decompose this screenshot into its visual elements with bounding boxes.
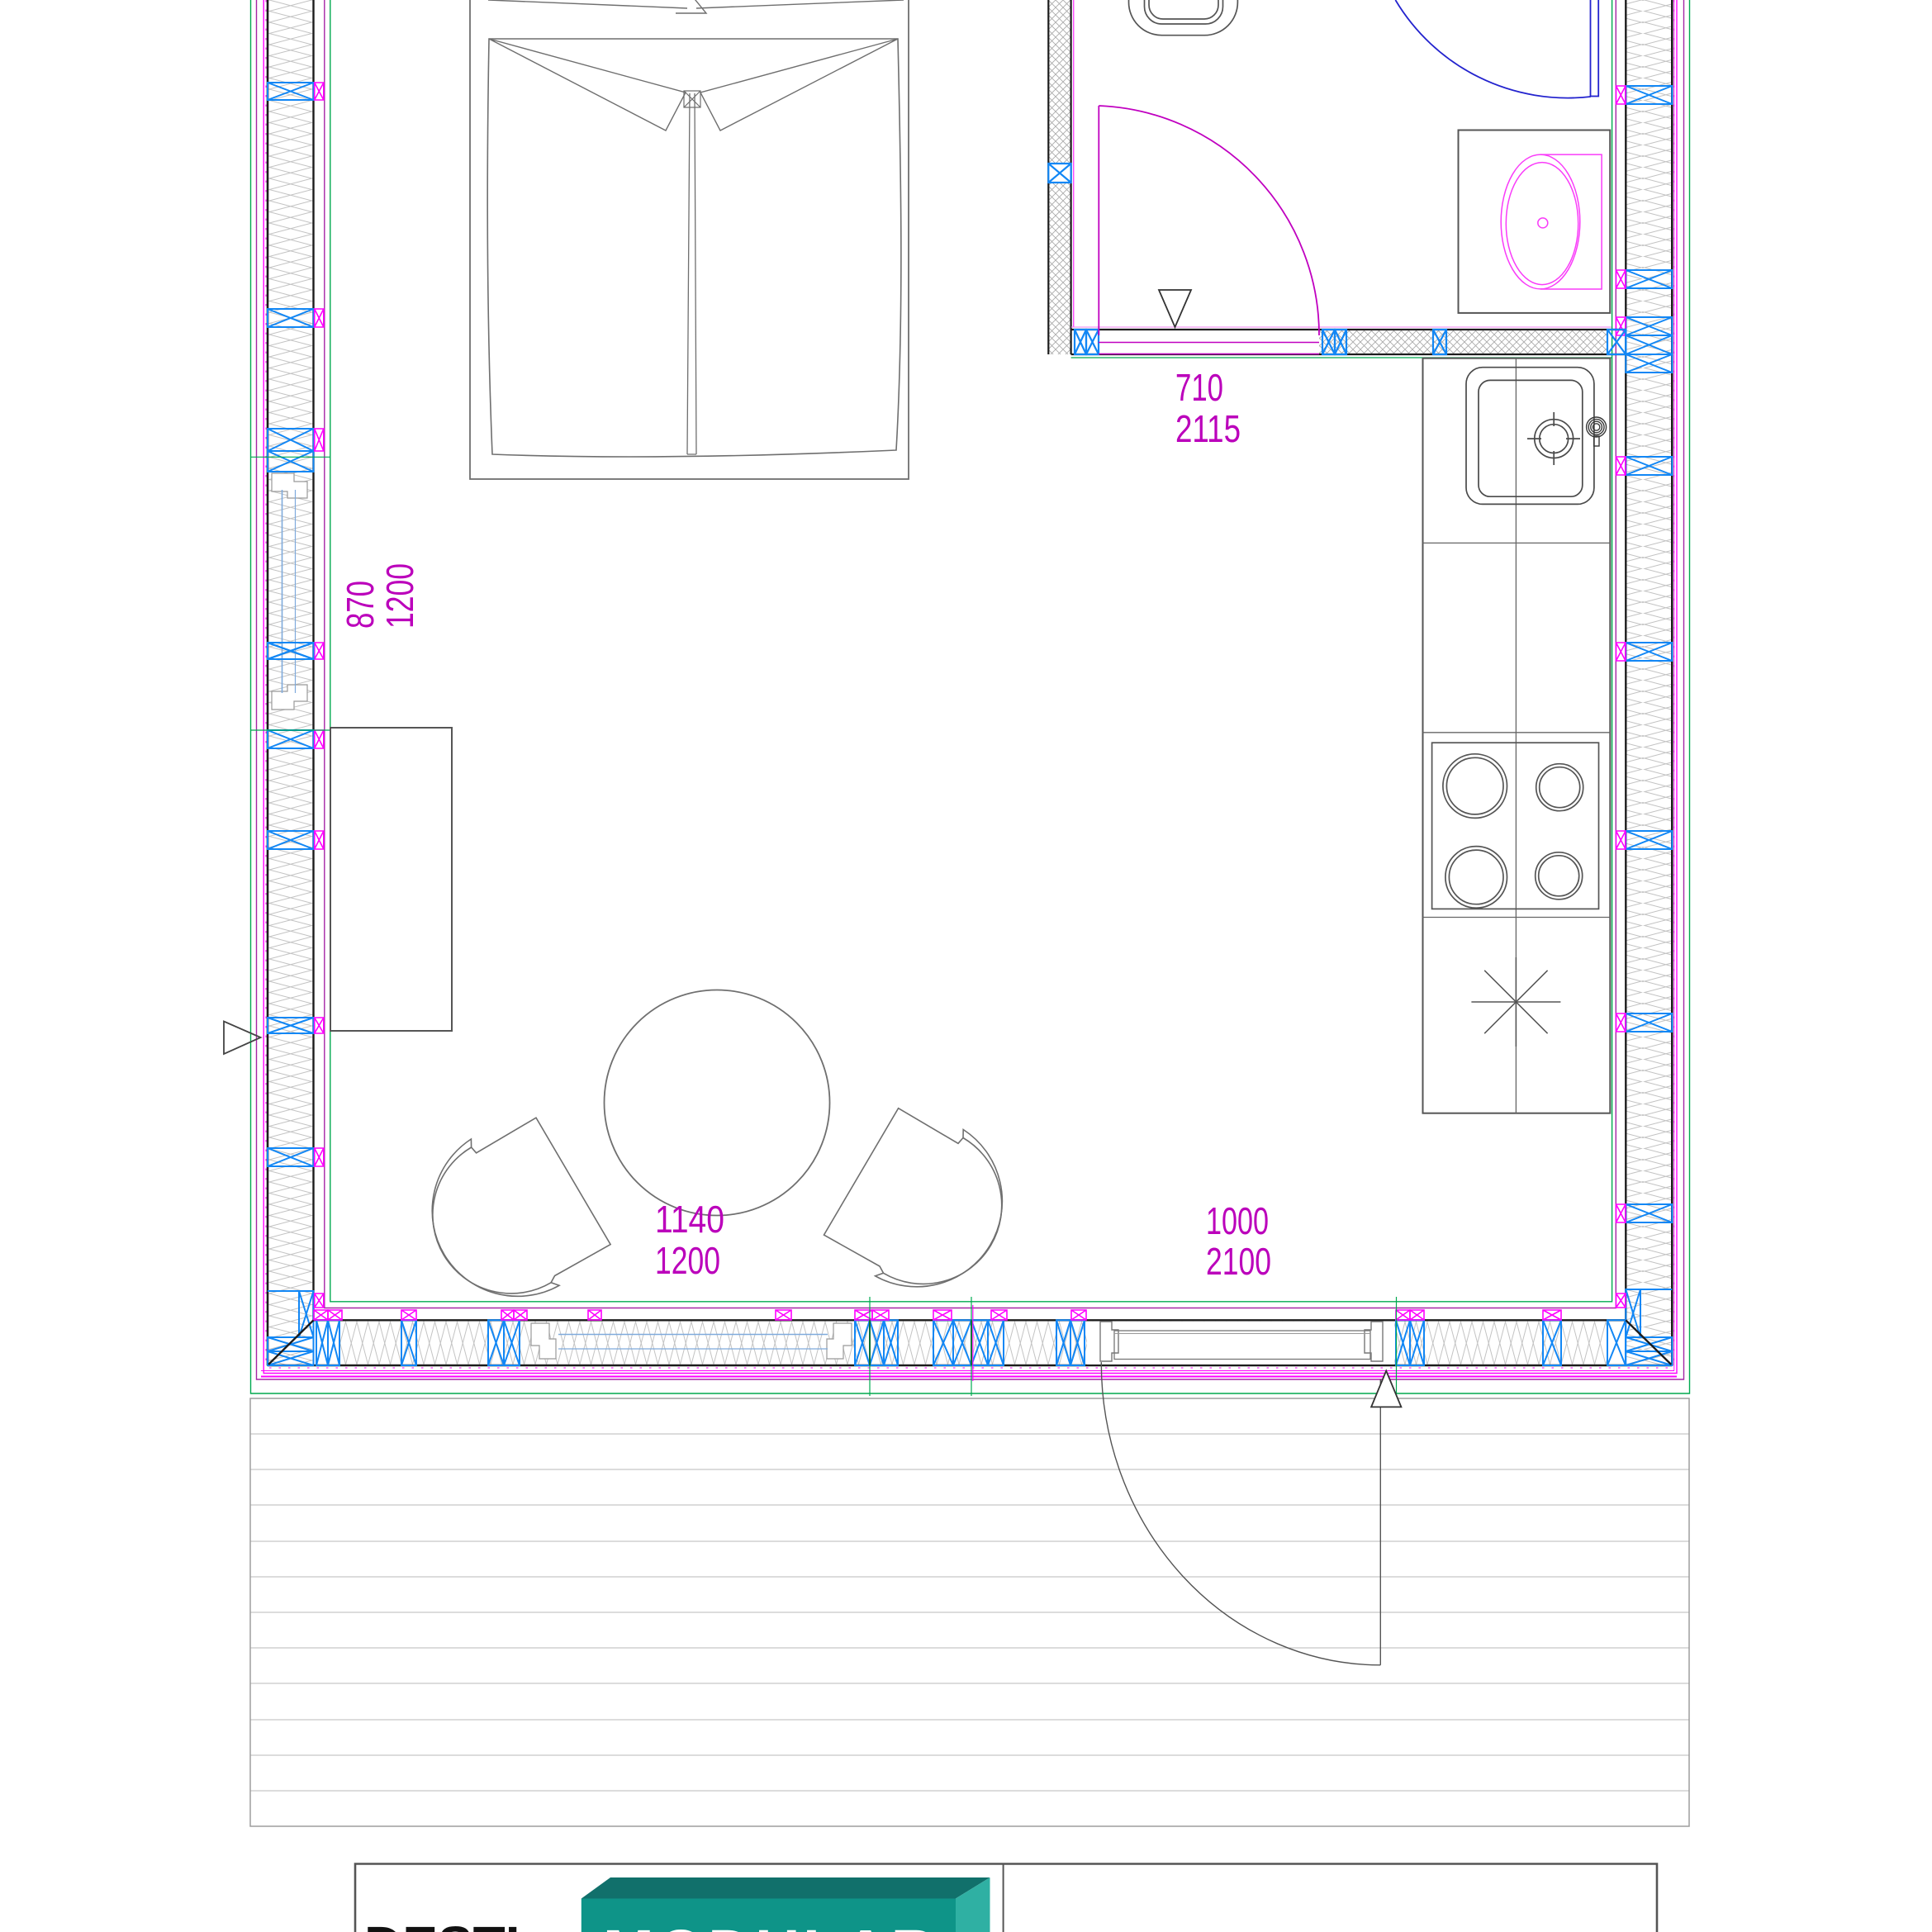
svg-text:710: 710	[1175, 366, 1223, 409]
svg-text:2100: 2100	[1206, 1240, 1271, 1283]
svg-text:DESTI: DESTI	[364, 1915, 520, 1932]
svg-text:870: 870	[339, 581, 382, 629]
svg-text:1000: 1000	[1206, 1199, 1269, 1242]
svg-text:2115: 2115	[1175, 407, 1241, 450]
svg-text:1140: 1140	[655, 1198, 724, 1241]
svg-text:MODULAR: MODULAR	[603, 1917, 938, 1932]
svg-text:1200: 1200	[378, 563, 421, 629]
svg-text:1200: 1200	[655, 1239, 720, 1282]
